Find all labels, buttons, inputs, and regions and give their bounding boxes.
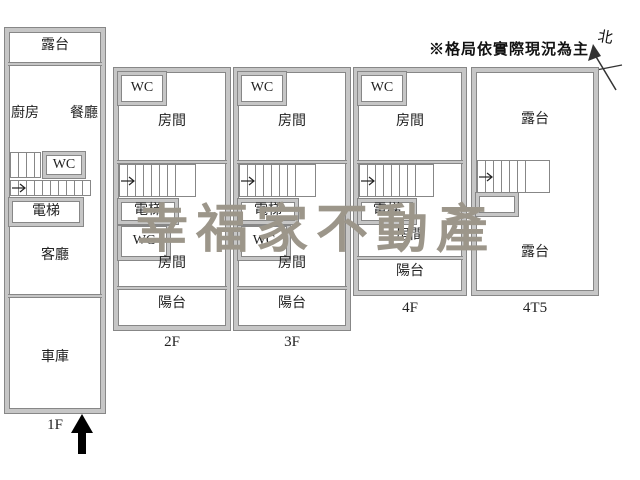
disclaimer-text: ※格局依實際現況為主 xyxy=(429,38,589,59)
room-label-room-top: 房間 xyxy=(278,114,306,131)
wall-divider xyxy=(117,286,227,290)
room-label-balcony: 陽台 xyxy=(278,296,306,313)
stair-direction-arrow-icon xyxy=(361,176,377,186)
agency-watermark: 幸福家不動產 xyxy=(136,205,496,257)
toilet-fixture xyxy=(9,152,41,178)
wc-box: WC xyxy=(238,72,286,105)
room-label-wc-top: WC xyxy=(131,80,154,97)
floorplan-canvas: ※格局依實際現況為主 北 露台 廚房 餐廳 WC 電梯 客廳 車庫 1F xyxy=(0,0,640,480)
floor-label-4f: 4F xyxy=(354,300,466,317)
wc-box: WC xyxy=(118,72,166,105)
room-label-wc-top: WC xyxy=(251,80,274,97)
floor-plan-2f: WC 房間 電梯 WC 房間 陽台 xyxy=(114,68,230,330)
floor-plan-3f: WC 房間 電梯 WC 房間 陽台 xyxy=(234,68,350,330)
room-label-terrace-top: 露台 xyxy=(521,112,549,129)
wall-divider xyxy=(8,294,102,298)
room-label-living: 客廳 xyxy=(41,248,69,265)
room-label-kitchen: 廚房 xyxy=(11,106,39,123)
room-label-balcony: 陽台 xyxy=(158,296,186,313)
floor-label-3f: 3F xyxy=(234,334,350,351)
room-label-terrace: 露台 xyxy=(41,38,69,55)
floor-plan-4t5: 露台 露台 xyxy=(472,68,598,295)
stair-direction-arrow-icon xyxy=(241,176,257,186)
stair-direction-arrow-icon xyxy=(479,172,495,182)
stair-direction-arrow-icon xyxy=(121,176,137,186)
floor-label-4t5: 4T5 xyxy=(472,300,598,317)
stairs-3f xyxy=(238,164,316,197)
room-label-terrace-bottom: 露台 xyxy=(521,245,549,262)
floor-plan-4f: WC 房間 電梯 房間 陽台 xyxy=(354,68,466,295)
room-label-room-top: 房間 xyxy=(158,114,186,131)
wc-box: WC xyxy=(43,152,85,178)
room-label-garage: 車庫 xyxy=(41,350,69,367)
room-label-room-top: 房間 xyxy=(396,114,424,131)
stairs-4f xyxy=(358,164,434,197)
elevator-box: 電梯 xyxy=(9,198,83,226)
floor-plan-1f: 露台 廚房 餐廳 WC 電梯 客廳 車庫 xyxy=(5,28,105,413)
room-label-balcony: 陽台 xyxy=(396,264,424,281)
entrance-arrow-icon xyxy=(71,414,93,456)
floor-label-2f: 2F xyxy=(114,334,230,351)
stairs-1f xyxy=(9,180,91,196)
stairs-4t5 xyxy=(476,160,550,193)
room-label-wc: WC xyxy=(53,157,76,174)
stair-direction-arrow-icon xyxy=(12,183,28,193)
room-label-dining: 餐廳 xyxy=(70,106,98,123)
wc-box: WC xyxy=(358,72,406,105)
room-label-wc-top: WC xyxy=(371,80,394,97)
wall-divider xyxy=(8,62,102,66)
stairs-2f xyxy=(118,164,196,197)
wall-divider xyxy=(237,286,347,290)
room-label-elevator: 電梯 xyxy=(32,204,60,221)
